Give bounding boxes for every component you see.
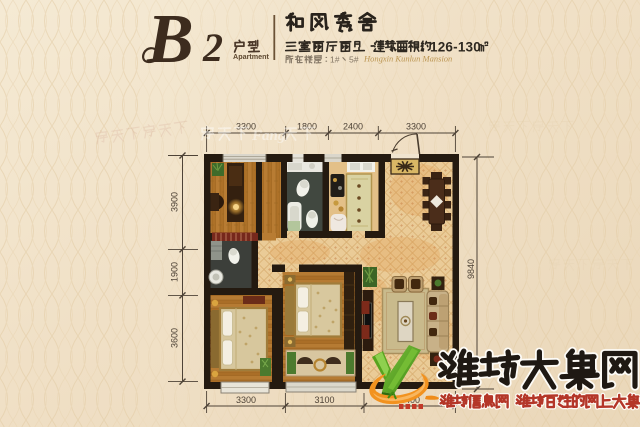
svg-text:3300: 3300: [406, 122, 426, 132]
svg-text:B: B: [146, 1, 194, 78]
svg-text:1900: 1900: [170, 262, 180, 282]
svg-text:3300: 3300: [236, 395, 256, 405]
svg-text:1#: 1#: [330, 55, 340, 65]
svg-text:Hongxin Kunlun Mansion: Hongxin Kunlun Mansion: [363, 54, 452, 64]
svg-text:Apartment: Apartment: [233, 52, 270, 61]
svg-text:2: 2: [202, 25, 223, 70]
svg-text:126-130: 126-130: [430, 40, 481, 55]
svg-text:5#: 5#: [349, 55, 359, 65]
svg-text:9840: 9840: [466, 259, 476, 279]
svg-text:3900: 3900: [170, 192, 180, 212]
svg-text:3100: 3100: [314, 395, 334, 405]
svg-text:Fang: Fang: [251, 128, 286, 144]
svg-text:2400: 2400: [343, 122, 363, 132]
svg-text:3600: 3600: [170, 328, 180, 348]
